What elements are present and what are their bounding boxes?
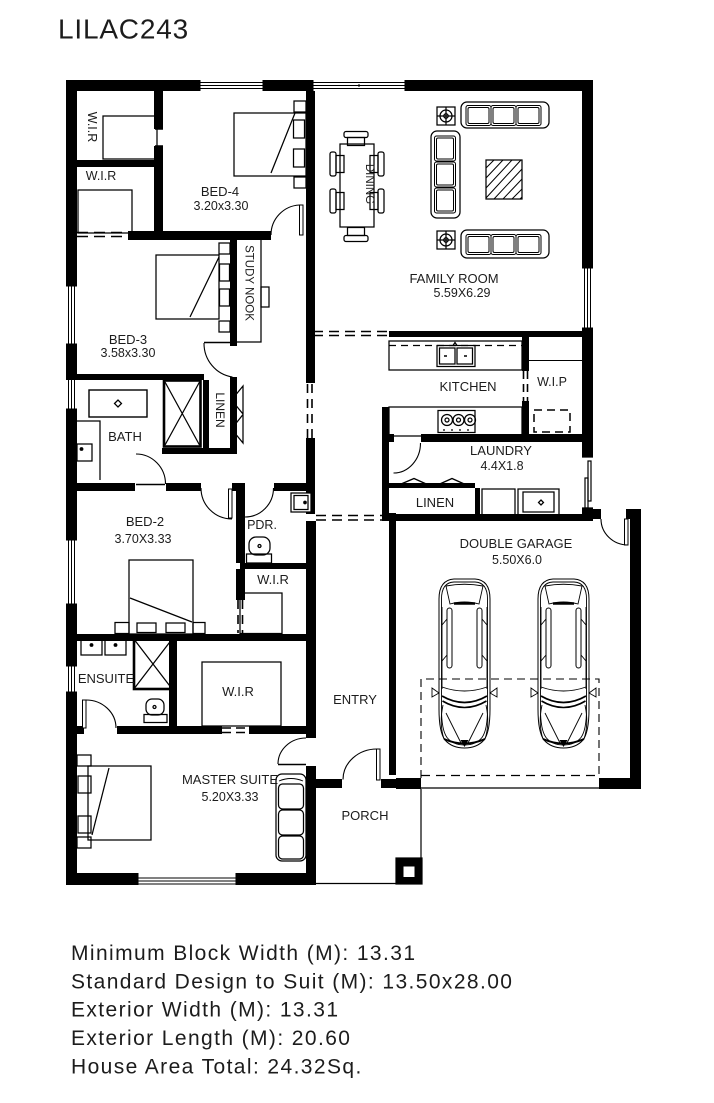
svg-text:5.59X6.29: 5.59X6.29	[434, 286, 491, 300]
svg-text:ENTRY: ENTRY	[333, 692, 377, 707]
svg-text:5.20X3.33: 5.20X3.33	[202, 790, 259, 804]
svg-text:W.I.R: W.I.R	[86, 169, 117, 183]
svg-text:PDR.: PDR.	[247, 518, 277, 532]
svg-text:Exterior Width (M): 13.31: Exterior Width (M): 13.31	[71, 999, 339, 1022]
svg-text:BED-2: BED-2	[126, 514, 164, 529]
svg-text:LINEN: LINEN	[416, 495, 454, 510]
svg-text:KITCHEN: KITCHEN	[439, 379, 496, 394]
svg-text:FAMILY ROOM: FAMILY ROOM	[409, 271, 498, 286]
svg-text:3.70X3.33: 3.70X3.33	[115, 532, 172, 546]
svg-text:W.I.R: W.I.R	[257, 572, 289, 587]
svg-text:W.I.R: W.I.R	[222, 684, 254, 699]
svg-text:PORCH: PORCH	[342, 808, 389, 823]
svg-text:3.58x3.30: 3.58x3.30	[101, 346, 156, 360]
svg-text:ENSUITE: ENSUITE	[78, 671, 135, 686]
svg-text:LILAC243: LILAC243	[58, 14, 189, 45]
svg-text:BED-4: BED-4	[201, 184, 239, 199]
svg-text:LINEN: LINEN	[213, 392, 227, 427]
svg-text:Minimum Block Width (M): 13.31: Minimum Block Width (M): 13.31	[71, 942, 416, 965]
svg-text:4.4X1.8: 4.4X1.8	[480, 459, 523, 473]
svg-text:Standard Design to Suit (M): 1: Standard Design to Suit (M): 13.50x28.00	[71, 970, 513, 993]
svg-text:LAUNDRY: LAUNDRY	[470, 443, 532, 458]
svg-text:House Area Total: 24.32Sq.: House Area Total: 24.32Sq.	[71, 1055, 363, 1078]
svg-text:DINING: DINING	[363, 164, 375, 204]
svg-text:DOUBLE GARAGE: DOUBLE GARAGE	[460, 536, 573, 551]
svg-text:W.I.P: W.I.P	[537, 375, 567, 389]
svg-text:3.20x3.30: 3.20x3.30	[194, 199, 249, 213]
svg-text:STUDY NOOK: STUDY NOOK	[243, 245, 255, 321]
svg-text:MASTER SUITE: MASTER SUITE	[182, 772, 278, 787]
svg-text:Exterior Length (M): 20.60: Exterior Length (M): 20.60	[71, 1027, 351, 1050]
svg-text:5.50X6.0: 5.50X6.0	[492, 553, 542, 567]
svg-text:BED-3: BED-3	[109, 332, 147, 347]
svg-text:W.I.R: W.I.R	[85, 112, 99, 143]
svg-text:BATH: BATH	[108, 429, 142, 444]
